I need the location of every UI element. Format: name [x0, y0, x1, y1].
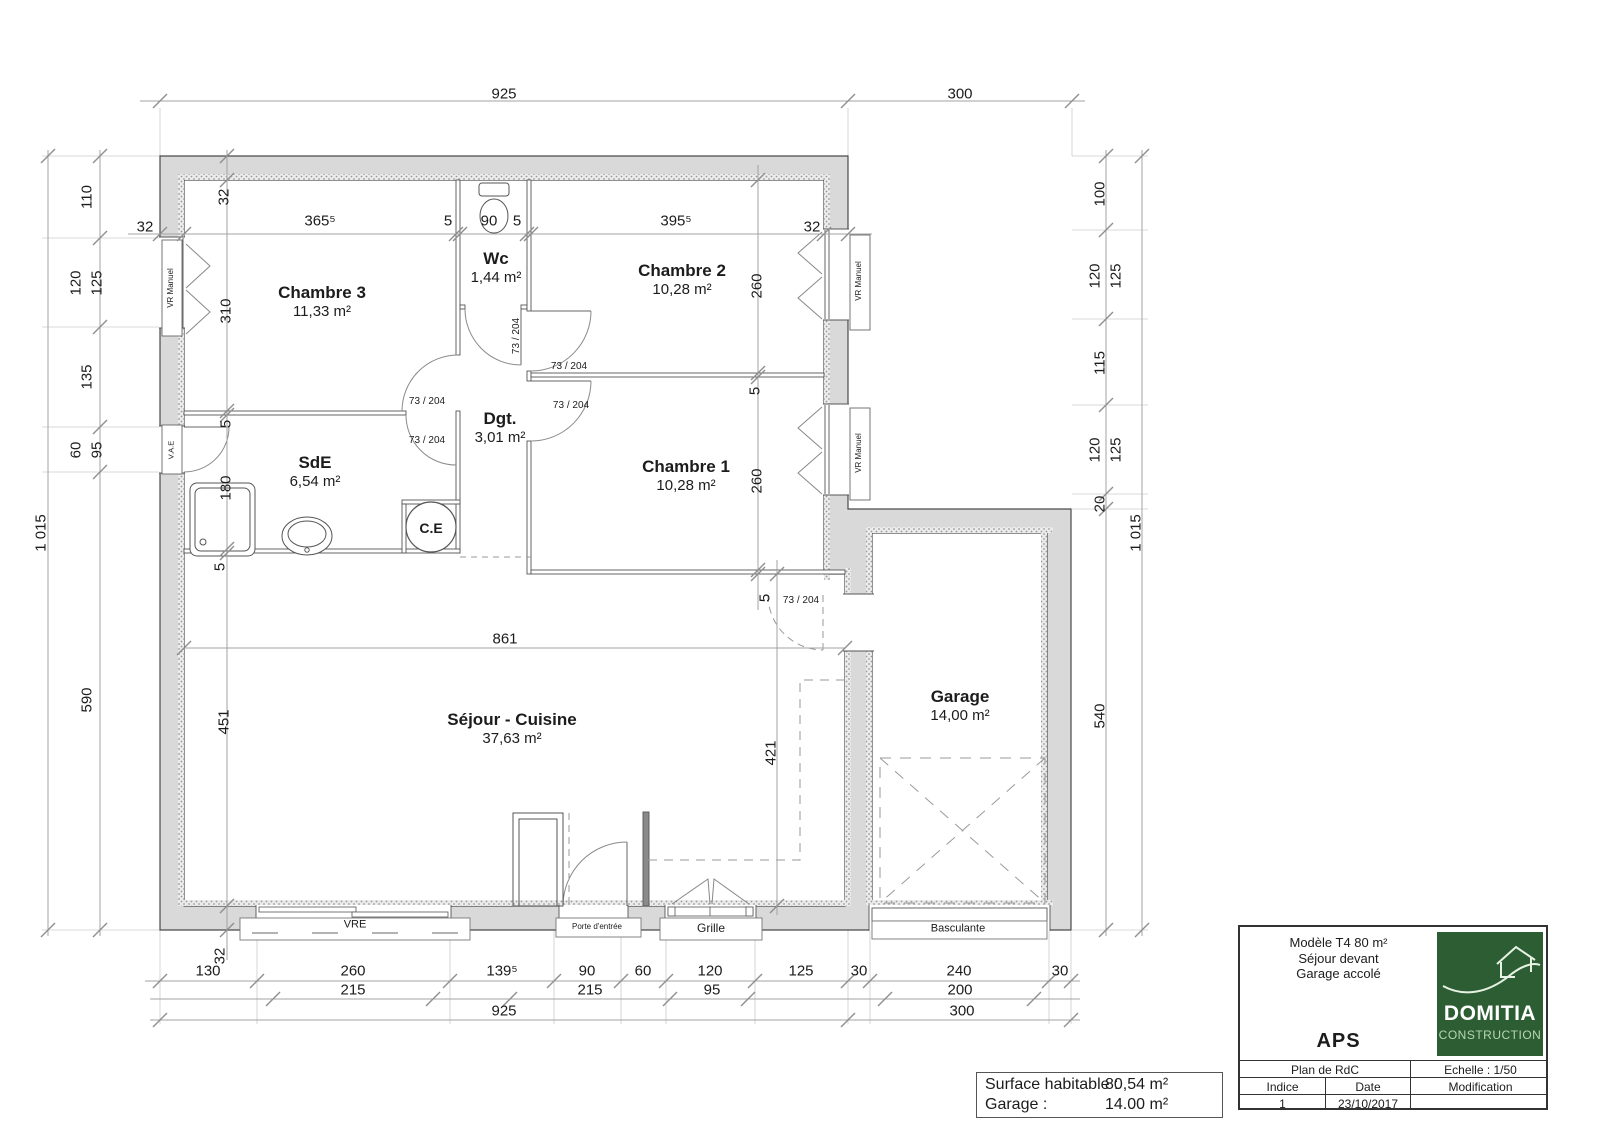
- door-size: 73 / 204: [512, 318, 522, 354]
- dim-right: 120: [1088, 437, 1103, 462]
- dim-bottom2: 200: [947, 983, 972, 998]
- title-block-row-values: 1 23/10/2017: [1240, 1094, 1546, 1110]
- window-label: VR Manuel: [855, 261, 863, 301]
- dim-part: 5: [219, 420, 234, 428]
- room-label: Chambre 110,28 m²: [642, 457, 730, 495]
- room-label: Chambre 311,33 m²: [278, 283, 366, 321]
- dim-ch1-h: 260: [750, 468, 765, 493]
- model-description: Modèle T4 80 m² Séjour devant Garage acc…: [1240, 935, 1437, 982]
- room-name: Séjour - Cuisine: [447, 710, 576, 730]
- surface-label: Surface habitable :: [985, 1076, 1118, 1094]
- dim-part: 5: [444, 214, 452, 229]
- garage-surface-value: 14.00 m²: [1105, 1096, 1168, 1114]
- door-size: 73 / 204: [553, 401, 589, 411]
- window-label: Grille: [697, 922, 725, 934]
- scale-label: Echelle : 1/50: [1410, 1061, 1550, 1077]
- dim-bottom2: 95: [704, 983, 721, 998]
- title-block-main: Modèle T4 80 m² Séjour devant Garage acc…: [1240, 927, 1546, 1060]
- surface-table: Surface habitable : 80,54 m² Garage : 14…: [976, 1072, 1223, 1118]
- dim-bottom: 260: [340, 964, 365, 979]
- dim-sejour-nook: 421: [764, 740, 779, 765]
- floor-plan-page: 92530032365⁵5905395⁵32323105180545132260…: [0, 0, 1600, 1131]
- room-label: Wc1,44 m²: [471, 249, 522, 287]
- title-block-row-headers: Indice Date Modification: [1240, 1077, 1546, 1094]
- dim-left: 590: [80, 687, 95, 712]
- dim-sejour-h: 451: [217, 709, 232, 734]
- dim-ch3-h: 310: [219, 298, 234, 323]
- logo-title: DOMITIA: [1437, 1002, 1543, 1026]
- entry-closet: [513, 813, 563, 906]
- dim-part: 5: [758, 594, 773, 602]
- room-name: SdE: [290, 453, 341, 473]
- dim-part: 5: [513, 214, 521, 229]
- dim-ch3-w: 365⁵: [304, 214, 335, 229]
- company-logo: DOMITIA CONSTRUCTION: [1437, 932, 1543, 1056]
- dim-bottom: 139⁵: [486, 964, 517, 979]
- room-label: Chambre 210,28 m²: [638, 261, 726, 299]
- dim-part: 5: [213, 563, 228, 571]
- room-area: 3,01 m²: [475, 429, 526, 447]
- dim-wc-w: 90: [481, 214, 498, 229]
- room-name: Garage: [930, 687, 989, 707]
- toilet-tank: [479, 183, 509, 196]
- dim-bottom: 60: [635, 964, 652, 979]
- dim-bottom: 30: [851, 964, 868, 979]
- col-indice: Indice: [1240, 1078, 1325, 1094]
- logo-subtitle: CONSTRUCTION: [1437, 1028, 1543, 1042]
- window-label: VR Manuel: [855, 433, 863, 473]
- room-name: Chambre 3: [278, 283, 366, 303]
- dim-left-total: 1 015: [34, 514, 49, 552]
- model-line3: Garage accolé: [1240, 966, 1437, 982]
- door-size: 73 / 204: [409, 397, 445, 407]
- dim-top-main: 925: [491, 87, 516, 102]
- dim-bottom2: 215: [577, 983, 602, 998]
- dim-bottom3: 300: [949, 1004, 974, 1019]
- room-area: 14,00 m²: [930, 707, 989, 725]
- col-modification: Modification: [1410, 1078, 1550, 1094]
- dim-sde-h: 180: [219, 475, 234, 500]
- dim-left: 110: [80, 185, 95, 209]
- dim-bottom: 120: [697, 964, 722, 979]
- window-label: VRE: [344, 920, 367, 931]
- title-block: Modèle T4 80 m² Séjour devant Garage acc…: [1238, 925, 1548, 1110]
- fixtures: [190, 183, 509, 556]
- indice-value: 1: [1240, 1095, 1325, 1110]
- door-label: V.A.E: [167, 441, 175, 460]
- room-label: Garage14,00 m²: [930, 687, 989, 725]
- kitchen-counter-outline: [648, 680, 845, 860]
- room-name: Dgt.: [475, 409, 526, 429]
- dim-sejour-w: 861: [492, 632, 517, 647]
- door-size: 73 / 204: [783, 596, 819, 606]
- garage-surface-label: Garage :: [985, 1096, 1047, 1114]
- surface-value: 80,54 m²: [1105, 1076, 1168, 1094]
- room-area: 11,33 m²: [278, 303, 366, 321]
- dim-bottom: 240: [946, 964, 971, 979]
- dim-part: 5: [748, 387, 763, 395]
- doc-type: APS: [1240, 1030, 1437, 1053]
- dim-right: 540: [1093, 703, 1108, 728]
- door-swings: [184, 309, 627, 906]
- room-name: Chambre 2: [638, 261, 726, 281]
- room-area: 6,54 m²: [290, 473, 341, 491]
- dim-ch2-w: 395⁵: [660, 214, 691, 229]
- dim-right: 125: [1109, 263, 1124, 288]
- dim-right: 125: [1109, 437, 1124, 462]
- wall-openings: [159, 229, 1050, 931]
- door-size: 73 / 204: [409, 436, 445, 446]
- dim-right: 120: [1088, 263, 1103, 288]
- dim-left: 135: [80, 364, 95, 389]
- room-label: SdE6,54 m²: [290, 453, 341, 491]
- room-area: 10,28 m²: [642, 477, 730, 495]
- dim-bottom: 125: [788, 964, 813, 979]
- plan-name: Plan de RdC: [1240, 1061, 1410, 1077]
- room-label: Séjour - Cuisine37,63 m²: [447, 710, 576, 748]
- modification-value: [1410, 1095, 1550, 1110]
- window-frames: [162, 230, 1047, 940]
- door-label: Porte d'entrée: [572, 923, 622, 931]
- garage-door-label: Basculante: [931, 924, 985, 935]
- dim-bottom3: 925: [491, 1004, 516, 1019]
- dim-bottom2: 215: [340, 983, 365, 998]
- dim-right-total: 1 015: [1129, 514, 1144, 552]
- logo-house-icon: [1437, 932, 1543, 1000]
- dim-bottom: 130: [195, 964, 220, 979]
- dim-top-garage: 300: [947, 87, 972, 102]
- col-date: Date: [1325, 1078, 1410, 1094]
- room-name: Chambre 1: [642, 457, 730, 477]
- witness-lines: [42, 108, 1148, 1024]
- water-heater-label: C.E: [419, 521, 442, 535]
- garage-parking-cross: [880, 758, 1045, 903]
- door-size: 73 / 204: [551, 362, 587, 372]
- dim-left: 125: [90, 270, 105, 295]
- room-name: Wc: [471, 249, 522, 269]
- dim-right: 115: [1093, 351, 1108, 375]
- dim-ch2-h: 260: [750, 273, 765, 298]
- dim-right: 100: [1093, 181, 1108, 206]
- dim-right: 20: [1093, 496, 1108, 513]
- dim-left: 60: [69, 442, 84, 459]
- dim-wall: 32: [137, 220, 154, 235]
- dim-wall: 32: [217, 189, 232, 206]
- window-label: VR Manuel: [167, 268, 175, 308]
- dim-left: 95: [90, 442, 105, 459]
- room-area: 10,28 m²: [638, 281, 726, 299]
- dim-wall: 32: [804, 220, 821, 235]
- room-label: Dgt.3,01 m²: [475, 409, 526, 447]
- model-line1: Modèle T4 80 m²: [1240, 935, 1437, 951]
- date-value: 23/10/2017: [1325, 1095, 1410, 1110]
- dim-bottom: 90: [579, 964, 596, 979]
- model-line2: Séjour devant: [1240, 951, 1437, 967]
- dim-bottom: 30: [1052, 964, 1069, 979]
- room-area: 1,44 m²: [471, 269, 522, 287]
- title-block-row-plan: Plan de RdC Echelle : 1/50: [1240, 1060, 1546, 1077]
- dim-left: 120: [69, 270, 84, 295]
- dimension-lines: [41, 94, 1149, 1027]
- room-area: 37,63 m²: [447, 730, 576, 748]
